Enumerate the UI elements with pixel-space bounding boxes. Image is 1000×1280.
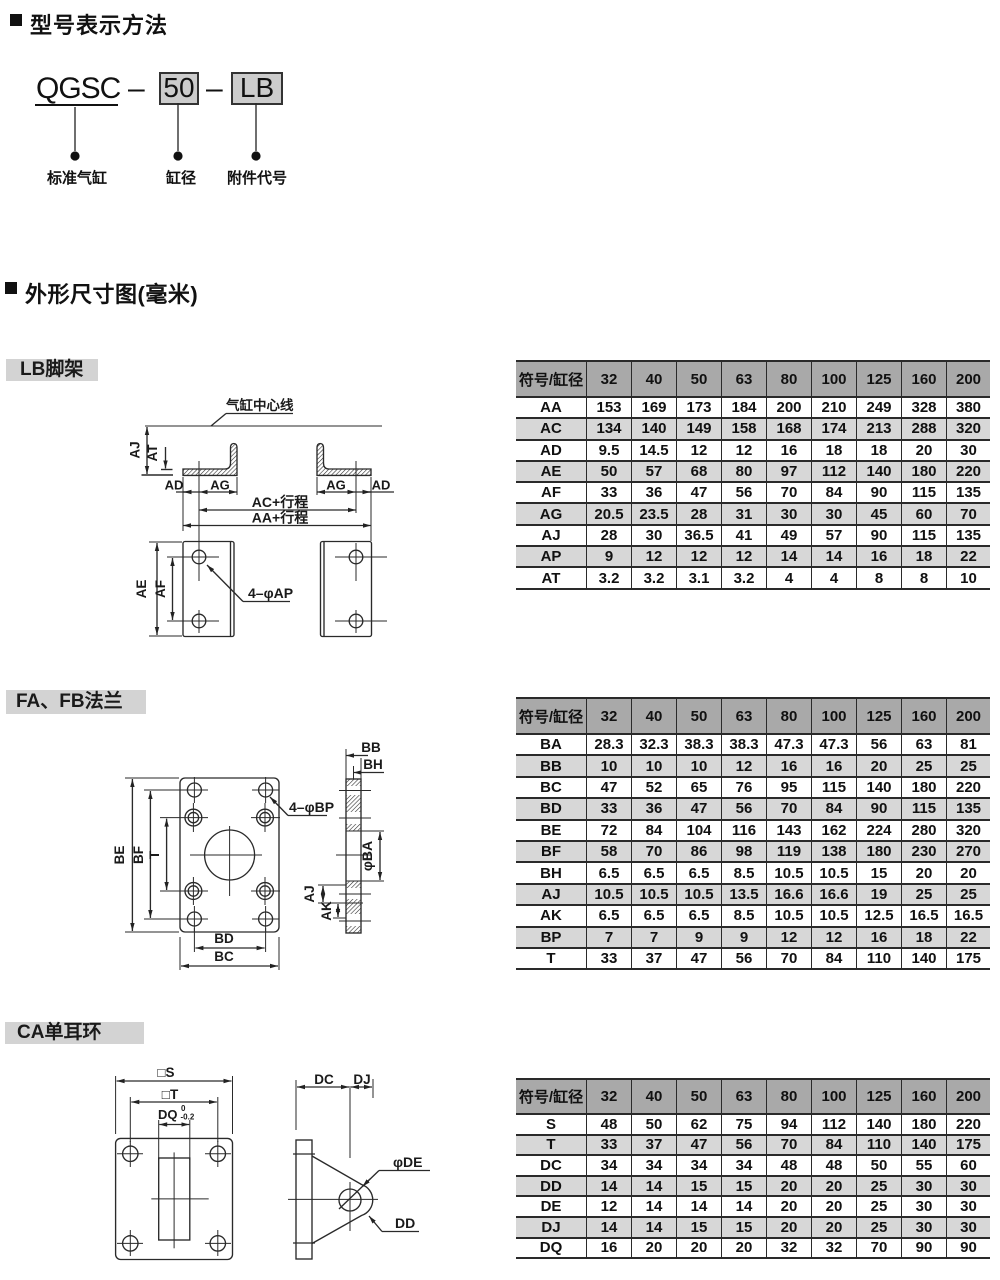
svg-text:□T: □T — [162, 1087, 179, 1102]
svg-text:□S: □S — [157, 1065, 174, 1080]
svg-text:φBA: φBA — [359, 841, 375, 871]
svg-text:DQ: DQ — [158, 1107, 178, 1122]
svg-text:气缸中心线: 气缸中心线 — [225, 397, 294, 413]
svg-text:BD: BD — [214, 931, 234, 946]
svg-text:AC+行程: AC+行程 — [252, 494, 308, 510]
svg-text:4–φAP: 4–φAP — [248, 585, 293, 601]
svg-text:BC: BC — [214, 949, 234, 964]
svg-text:AA+行程: AA+行程 — [252, 510, 308, 526]
svg-text:AK: AK — [319, 901, 334, 921]
svg-text:AG: AG — [326, 478, 346, 493]
svg-text:DC: DC — [314, 1072, 334, 1087]
svg-text:AT: AT — [145, 444, 160, 462]
svg-text:AD: AD — [372, 478, 391, 493]
svg-text:-0.2: -0.2 — [181, 1113, 195, 1122]
svg-text:DJ: DJ — [353, 1072, 370, 1087]
svg-text:AF: AF — [153, 580, 168, 598]
svg-text:BB: BB — [361, 740, 381, 755]
svg-text:T: T — [147, 850, 162, 859]
svg-text:BF: BF — [131, 846, 146, 864]
svg-text:BH: BH — [363, 757, 383, 772]
svg-text:AG: AG — [210, 478, 230, 493]
svg-text:φDE: φDE — [393, 1154, 422, 1170]
svg-text:AE: AE — [134, 580, 149, 599]
svg-text:BE: BE — [112, 846, 127, 865]
svg-text:AD: AD — [165, 478, 184, 493]
svg-text:4–φBP: 4–φBP — [289, 799, 334, 815]
svg-text:AJ: AJ — [128, 441, 143, 458]
svg-text:DD: DD — [395, 1215, 415, 1231]
svg-text:AJ: AJ — [302, 885, 317, 902]
